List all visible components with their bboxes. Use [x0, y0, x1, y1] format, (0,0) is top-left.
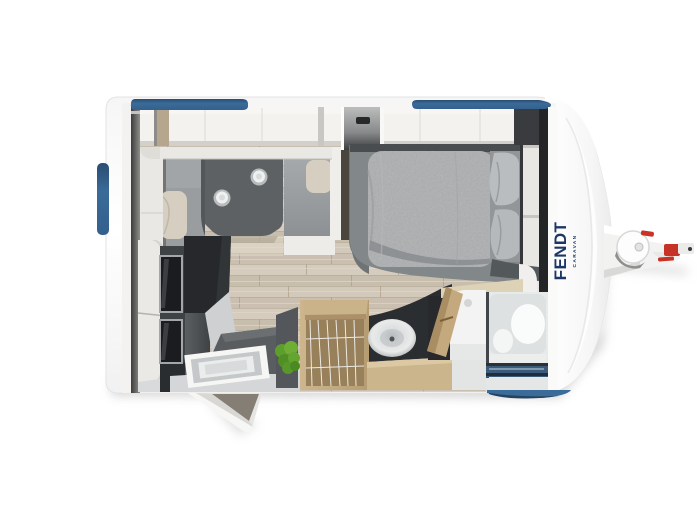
svg-text:FENDT: FENDT	[551, 221, 570, 280]
svg-text:CARAVAN: CARAVAN	[572, 234, 578, 267]
